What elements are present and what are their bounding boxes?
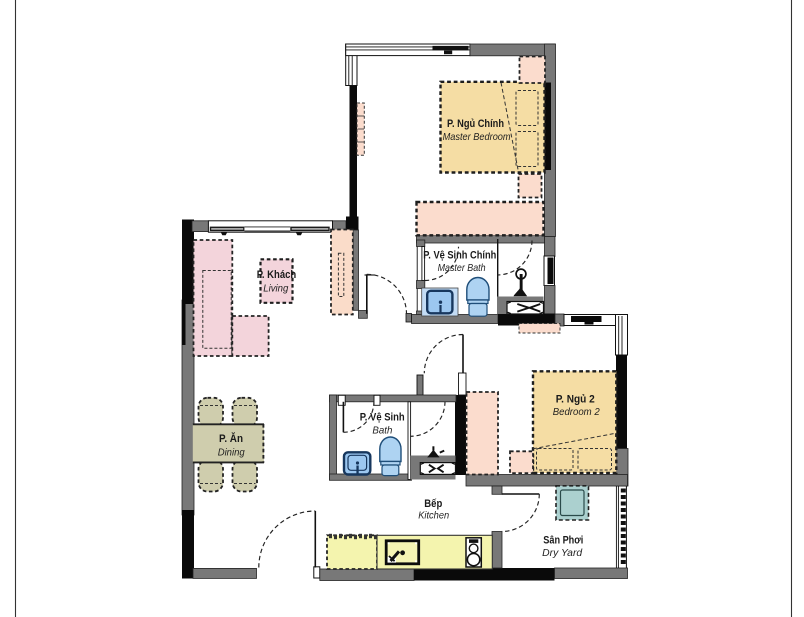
svg-text:Dry Yard: Dry Yard [542,548,582,559]
svg-text:Living: Living [263,283,288,294]
svg-text:Bedroom 2: Bedroom 2 [553,407,600,418]
svg-text:Master Bath: Master Bath [438,263,486,274]
svg-text:P. Khách: P. Khách [257,269,297,281]
svg-text:P. Ăn: P. Ăn [219,432,243,445]
svg-text:P. Ngủ 2: P. Ngủ 2 [556,394,595,406]
svg-text:Bath: Bath [372,425,392,436]
svg-text:Dining: Dining [218,448,245,459]
svg-text:Master Bedroom: Master Bedroom [443,132,511,143]
svg-text:Kitchen: Kitchen [418,511,449,522]
svg-text:P. Vệ Sinh Chính: P. Vệ Sinh Chính [423,250,496,262]
svg-text:Sân Phơi: Sân Phơi [543,534,583,546]
svg-text:P. Ngủ Chính: P. Ngủ Chính [447,118,504,130]
svg-text:Bếp: Bếp [424,498,442,510]
svg-text:P. Vệ Sinh: P. Vệ Sinh [360,411,405,423]
